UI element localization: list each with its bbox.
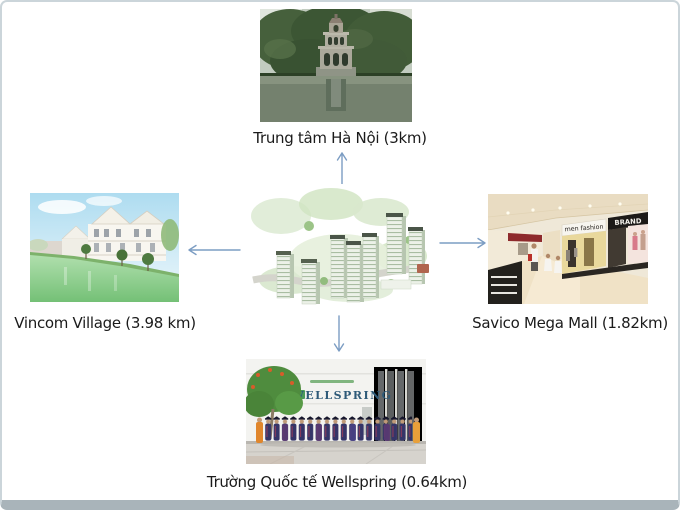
arrow-down-icon <box>330 314 348 354</box>
arrow-left-icon <box>186 240 242 260</box>
lakeside-villas-illustration <box>30 193 179 302</box>
label-wellspring-school: Trường Quốc tế Wellspring (0.64km) <box>197 472 477 492</box>
mall-interior-illustration: men fashion BRAND <box>488 194 648 304</box>
apartment-aerial-illustration <box>249 184 434 310</box>
hanoi-center-photo <box>260 9 412 122</box>
savico-mall-photo: men fashion BRAND <box>488 194 648 304</box>
wellspring-school-photo: WELLSPRING <box>246 359 426 464</box>
graduates-row <box>264 415 412 445</box>
label-savico-mall: Savico Mega Mall (1.82km) <box>468 313 672 333</box>
arrow-up-icon <box>333 150 351 188</box>
vincom-village-photo <box>30 193 179 302</box>
arrow-right-icon <box>438 233 488 253</box>
turtle-tower-illustration <box>260 9 412 122</box>
graduation-group-illustration: WELLSPRING <box>246 359 426 464</box>
apartment-complex-photo <box>249 184 434 310</box>
label-vincom-village: Vincom Village (3.98 km) <box>10 313 200 333</box>
wellspring-sign: WELLSPRING <box>290 389 392 402</box>
label-hanoi-center: Trung tâm Hà Nội (3km) <box>236 128 444 148</box>
location-diagram-slide: Trung tâm Hà Nội (3km) <box>0 0 680 510</box>
